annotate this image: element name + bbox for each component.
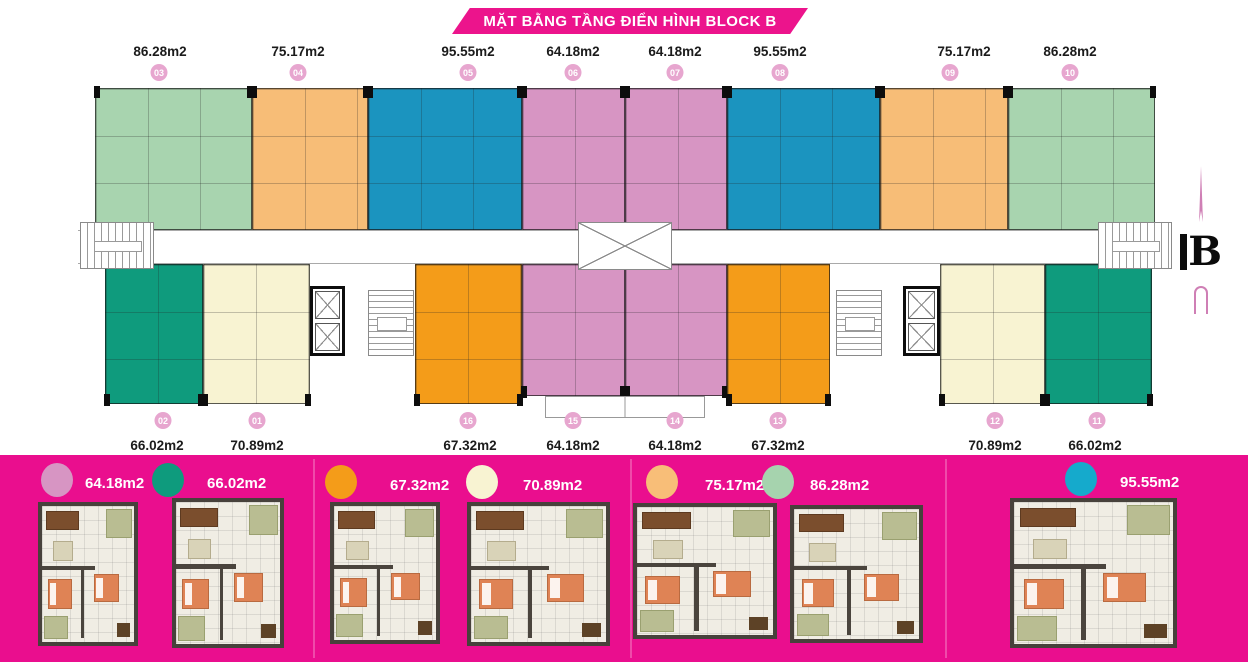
thumb-bathroom [797,614,829,637]
unit-badge-13: 13 [770,412,787,429]
thumb-wall-horizontal [471,566,549,570]
thumb-wall-horizontal [176,564,236,568]
area-label-01: 70.89m2 [230,438,283,453]
thumb-wall-horizontal [794,566,867,570]
thumb-dining-table [653,540,682,559]
page-title: MẶT BẰNG TẦNG ĐIỂN HÌNH BLOCK B [483,13,776,30]
elevator-shaft-left [310,286,345,356]
block-letter-bar [1180,234,1187,270]
thumb-balcony [106,509,132,538]
thumb-wall-vertical [377,569,381,636]
plan-unit-10 [1008,88,1155,230]
thumbnail-plan-66 [172,498,284,648]
unit-badge-07: 07 [667,64,684,81]
thumb-wall-vertical [528,570,533,638]
stairs-bottom-right [836,290,882,356]
thumb-bathroom [44,616,68,640]
plan-unit-08 [727,88,880,230]
unit-badge-03: 03 [151,64,168,81]
unit-badge-10: 10 [1062,64,1079,81]
thumb-bed-2 [1103,573,1146,602]
legend-band: 64.18m2 66.02m2 67.32m2 70.89m2 75.17m2 … [0,455,1248,662]
elevator-shaft-right [903,286,940,356]
thumb-bed-1 [645,576,680,604]
area-label-04: 75.17m2 [271,44,324,59]
area-label-16: 67.32m2 [443,438,496,453]
plan-unit-13 [727,264,830,404]
thumb-wall-vertical [1081,569,1087,640]
legend-label-67: 67.32m2 [390,477,449,494]
thumb-bathroom [336,614,362,637]
thumb-bathroom [474,616,508,640]
thumb-wardrobe [1144,624,1166,638]
elevator-cab [908,323,935,351]
thumb-dining-table [346,541,368,560]
plan-unit-04 [252,88,368,230]
block-letter-b: B [1188,230,1222,274]
thumbnail-plan-75 [633,503,777,639]
thumb-dining-table [487,541,516,561]
thumb-dining-table [1033,539,1067,559]
thumb-sofa [476,511,524,529]
plan-unit-07 [625,88,727,230]
legend-label-75: 75.17m2 [705,477,764,494]
area-label-09: 75.17m2 [937,44,990,59]
elevator-cab [315,291,340,319]
thumb-wardrobe [418,621,432,634]
unit-badge-01: 01 [249,412,266,429]
thumb-wall-vertical [847,570,851,635]
thumb-wardrobe [749,617,768,630]
thumb-bed-2 [234,573,263,602]
thumb-wall-vertical [220,569,224,640]
plan-unit-12 [940,264,1045,404]
area-label-08: 95.55m2 [753,44,806,59]
thumb-balcony [882,512,917,540]
plan-unit-15 [522,264,625,396]
plan-unit-16 [415,264,522,404]
unit-badge-08: 08 [772,64,789,81]
area-label-12: 70.89m2 [968,438,1021,453]
thumb-bed-1 [48,579,72,608]
thumb-dining-table [188,539,211,559]
unit-badge-02: 02 [155,412,172,429]
thumbnail-plan-67 [330,502,440,644]
unit-badge-09: 09 [942,64,959,81]
area-label-02: 66.02m2 [130,438,183,453]
thumb-wardrobe [897,621,915,634]
thumb-bed-1 [479,579,513,608]
legend-swatch-70 [466,465,498,499]
plan-unit-14 [625,264,727,396]
legend-label-64: 64.18m2 [85,475,144,492]
block-letter: B [1180,226,1222,278]
plan-unit-02 [105,264,203,404]
thumb-dining-table [809,543,836,562]
thumb-bathroom [1017,616,1057,641]
thumb-sofa [799,514,844,532]
thumb-balcony [249,505,278,535]
legend-swatch-75 [646,465,678,499]
legend-swatch-67 [325,465,357,499]
thumb-balcony [405,509,434,538]
area-label-05: 95.55m2 [441,44,494,59]
thumb-bed-1 [1024,579,1064,609]
thumb-bed-1 [802,579,834,607]
thumb-bed-2 [713,571,750,597]
thumb-sofa [642,512,690,529]
area-label-10: 86.28m2 [1043,44,1096,59]
unit-badge-15: 15 [565,412,582,429]
thumbnail-plan-70 [467,502,610,646]
thumb-wardrobe [261,624,276,638]
thumb-wall-horizontal [42,566,95,570]
unit-badge-14: 14 [667,412,684,429]
plan-unit-06 [522,88,625,230]
legend-divider [313,459,315,658]
elevator-cab [315,323,340,351]
south-arch-icon [1194,286,1208,314]
thumb-wall-horizontal [1014,564,1106,568]
area-label-13: 67.32m2 [751,438,804,453]
thumb-dining-table [53,541,73,561]
thumbnail-plan-95 [1010,498,1177,648]
legend-swatch-86 [762,465,794,499]
area-label-11: 66.02m2 [1068,438,1121,453]
thumb-wall-vertical [694,567,699,631]
legend-swatch-64 [41,463,73,497]
stair-core-left [80,222,154,269]
floor-plan-poster: MẶT BẰNG TẦNG ĐIỂN HÌNH BLOCK B 86.28m2 … [0,0,1248,662]
thumb-sofa [180,508,217,527]
unit-badge-04: 04 [290,64,307,81]
legend-divider [630,459,632,658]
plan-unit-05 [368,88,522,230]
thumb-sofa [338,511,375,529]
legend-divider [945,459,947,658]
area-label-03: 86.28m2 [133,44,186,59]
thumbnail-plan-86 [790,505,923,643]
unit-badge-06: 06 [565,64,582,81]
thumb-bed-2 [94,574,120,602]
legend-label-86: 86.28m2 [810,477,869,494]
thumb-bathroom [640,610,675,632]
thumb-balcony [733,510,770,538]
area-label-07: 64.18m2 [648,44,701,59]
legend-swatch-66 [152,463,184,497]
thumb-bathroom [178,616,205,641]
legend-label-66: 66.02m2 [207,475,266,492]
unit-badge-12: 12 [987,412,1004,429]
thumb-bed-1 [182,579,209,609]
thumb-wall-horizontal [637,563,716,567]
stairs-bottom-left [368,290,414,356]
unit-badge-05: 05 [460,64,477,81]
legend-label-70: 70.89m2 [523,477,582,494]
thumb-bed-1 [340,578,366,607]
unit-badge-11: 11 [1089,412,1106,429]
plan-unit-01 [203,264,310,404]
thumb-wall-vertical [81,570,84,638]
legend-label-95: 95.55m2 [1120,474,1179,491]
plan-unit-11 [1045,264,1152,404]
area-label-14: 64.18m2 [648,438,701,453]
thumb-sofa [1020,508,1076,527]
thumb-sofa [46,511,79,529]
thumb-wall-horizontal [334,565,393,569]
thumb-balcony [566,509,603,538]
thumb-bed-2 [547,574,584,602]
title-banner: MẶT BẰNG TẦNG ĐIỂN HÌNH BLOCK B [452,8,808,34]
area-label-06: 64.18m2 [546,44,599,59]
north-arrow-icon [1194,166,1208,222]
unit-badge-16: 16 [460,412,477,429]
thumbnail-plan-64 [38,502,138,646]
thumb-bed-2 [391,573,420,600]
plan-unit-03 [95,88,252,230]
thumb-wardrobe [582,623,601,637]
legend-swatch-95 [1065,462,1097,496]
thumb-bed-2 [864,574,899,601]
area-label-15: 64.18m2 [546,438,599,453]
elevator-lobby [578,222,672,270]
plan-unit-09 [880,88,1008,230]
thumb-wardrobe [117,623,130,637]
thumb-balcony [1127,505,1170,535]
block-b-compass: B [1180,166,1222,336]
elevator-cab [908,291,935,319]
stair-core-right [1098,222,1172,269]
